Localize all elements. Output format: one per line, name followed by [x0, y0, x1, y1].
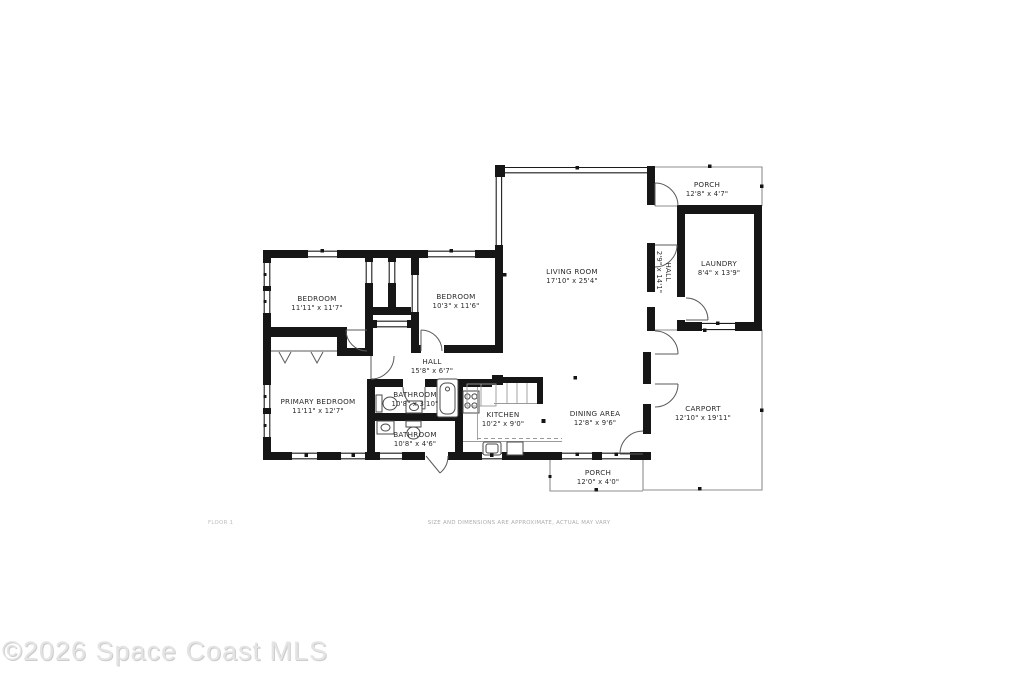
room-name: HALL [664, 262, 673, 281]
floor-label: FLOOR 1 [208, 520, 233, 526]
room-label-carport: CARPORT 12'10" x 19'11" [675, 404, 731, 422]
room-name: PORCH [585, 468, 611, 477]
room-name: PORCH [694, 180, 720, 189]
pantry-shelves-icon [494, 383, 537, 404]
room-name: HALL [422, 357, 441, 366]
room-label-porch-bottom: PORCH 12'0" x 4'0" [577, 468, 619, 486]
carport-door-mid-icon [655, 384, 678, 407]
room-label-porch-top: PORCH 12'8" x 4'7" [686, 180, 728, 198]
room-name: CARPORT [685, 404, 721, 413]
bedroom2-door-icon [421, 330, 442, 351]
room-label-bedroom-2: BEDROOM 10'3" x 11'6" [433, 292, 480, 310]
room-label-hall-vertical: HALL 2'9" x 14'1" [655, 251, 673, 293]
room-label-kitchen: KITCHEN 10'2" x 9'0" [482, 410, 524, 428]
room-name: BEDROOM [297, 294, 336, 303]
room-dims: 10'8" x 3'10" [392, 400, 439, 408]
room-dims: 11'11" x 11'7" [291, 304, 342, 312]
room-dims: 15'8" x 6'7" [411, 367, 453, 375]
room-label-bathroom-1: BATHROOM 10'8" x 3'10" [392, 390, 439, 408]
room-dims: 2'9" x 14'1" [655, 251, 663, 293]
room-dims: 12'8" x 4'7" [686, 190, 728, 198]
stove-icon [463, 391, 479, 413]
room-name: DINING AREA [570, 409, 621, 418]
dining-door-icon [620, 431, 643, 454]
room-dims: 12'0" x 4'0" [577, 478, 619, 486]
kitchen-sink-icon [483, 442, 501, 455]
room-name: LIVING ROOM [546, 267, 598, 276]
sink-icon [377, 421, 394, 434]
room-dims: 10'2" x 9'0" [482, 420, 524, 428]
room-name: BEDROOM [436, 292, 475, 301]
primary-bedroom-door-icon [371, 356, 394, 379]
porch-door-icon [655, 183, 678, 206]
room-dims: 11'11" x 12'7" [292, 407, 343, 415]
room-dims: 12'8" x 9'6" [574, 419, 616, 427]
laundry-door-icon [686, 298, 708, 320]
room-dims: 10'3" x 11'6" [433, 302, 480, 310]
bathroom2-exterior-door-icon [426, 456, 448, 473]
room-name: PRIMARY BEDROOM [280, 397, 355, 406]
dishwasher-icon [507, 442, 523, 455]
room-name: BATHROOM [393, 390, 437, 399]
carport-door-top-icon [655, 331, 678, 354]
bedroom1-door-icon [346, 330, 367, 351]
floorplan-drawing: PORCH 12'8" x 4'7" LAUNDRY 8'4" x 13'9" … [0, 0, 1024, 683]
room-label-hall: HALL 15'8" x 6'7" [411, 357, 453, 375]
room-label-laundry: LAUNDRY 8'4" x 13'9" [698, 259, 740, 277]
bathtub-icon [437, 379, 458, 417]
room-dims: 12'10" x 19'11" [675, 414, 731, 422]
disclaimer-text: SIZE AND DIMENSIONS ARE APPROXIMATE, ACT… [428, 520, 611, 526]
room-labels: PORCH 12'8" x 4'7" LAUNDRY 8'4" x 13'9" … [280, 180, 740, 486]
room-dims: 8'4" x 13'9" [698, 269, 740, 277]
room-name: LAUNDRY [701, 259, 737, 268]
mls-watermark: ©2026 Space Coast MLS [2, 636, 328, 667]
room-label-dining-area: DINING AREA 12'8" x 9'6" [570, 409, 621, 427]
room-label-living-room: LIVING ROOM 17'10" x 25'4" [546, 267, 598, 285]
room-name: KITCHEN [487, 410, 520, 419]
room-dims: 10'8" x 4'6" [394, 440, 436, 448]
closet-rod-icon [271, 351, 337, 363]
floorplan-page: PORCH 12'8" x 4'7" LAUNDRY 8'4" x 13'9" … [0, 0, 1024, 683]
room-name: BATHROOM [393, 430, 437, 439]
room-label-bedroom-1: BEDROOM 11'11" x 11'7" [291, 294, 342, 312]
room-label-primary-bedroom: PRIMARY BEDROOM 11'11" x 12'7" [280, 397, 355, 415]
room-dims: 17'10" x 25'4" [546, 277, 597, 285]
